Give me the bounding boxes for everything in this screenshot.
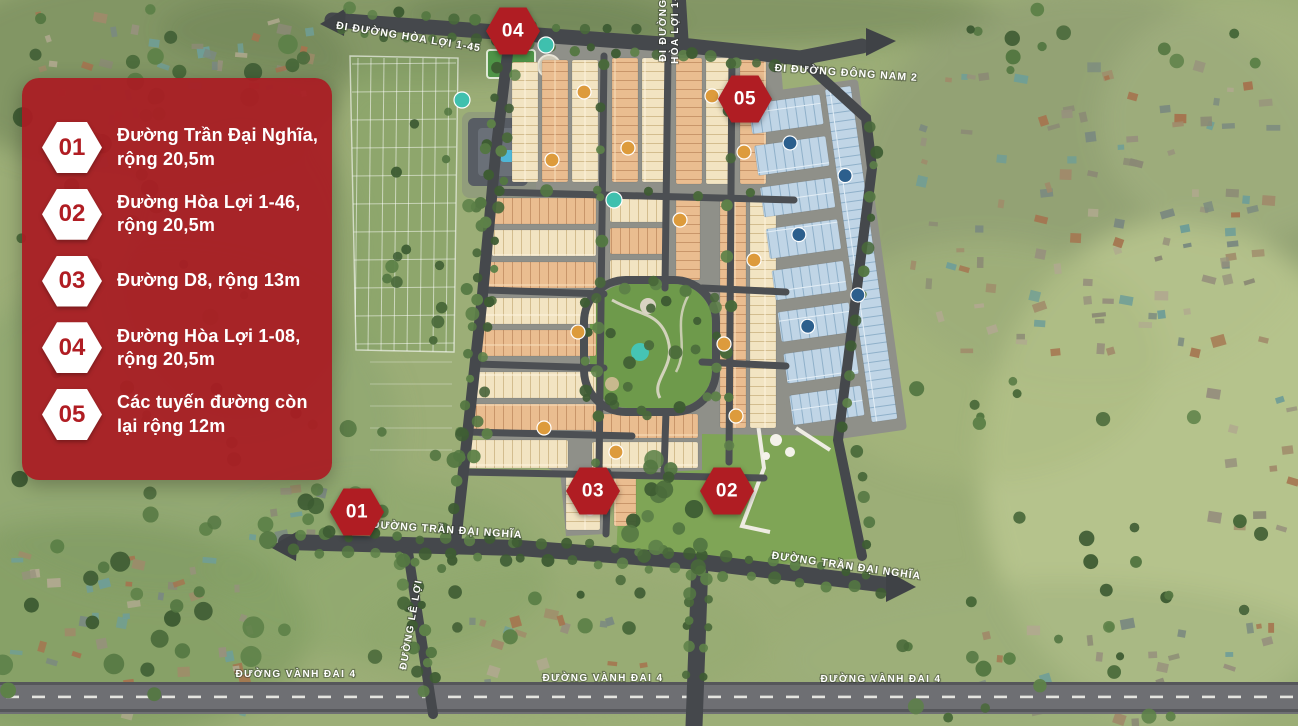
legend-item-label: Đường Hòa Lợi 1-08, rộng 20,5m [117, 325, 332, 371]
legend-badge-hexagon: 05 [42, 389, 102, 440]
map-marker-03: 03 [566, 468, 620, 515]
legend-badge-hexagon: 02 [42, 189, 102, 240]
map-marker-01: 01 [330, 489, 384, 536]
legend-item-label: Đường Hòa Lợi 1-46, rộng 20,5m [117, 191, 332, 237]
road-label-vanh-dai-4-right: ĐƯỜNG VÀNH ĐAI 4 [821, 672, 942, 685]
legend-item-label: Đường D8, rộng 13m [117, 269, 332, 292]
legend-item: 04 Đường Hòa Lợi 1-08, rộng 20,5m [22, 322, 332, 373]
road-label-vanh-dai-4-center: ĐƯỜNG VÀNH ĐAI 4 [543, 671, 664, 684]
road-hoa-loi-1-46 [694, 562, 700, 726]
legend-item-label: Đường Trần Đại Nghĩa, rộng 20,5m [117, 124, 332, 170]
legend-item: 03 Đường D8, rộng 13m [22, 256, 332, 307]
svg-text:HÒA LỢI 1-: HÒA LỢI 1- [668, 0, 681, 64]
legend-badge-hexagon: 04 [42, 322, 102, 373]
legend-badge-hexagon: 01 [42, 122, 102, 173]
legend-item: 05 Các tuyến đường còn lại rộng 12m [22, 389, 332, 440]
map-marker-02: 02 [700, 468, 754, 515]
svg-text:ĐI ĐƯỜNG: ĐI ĐƯỜNG [656, 0, 669, 62]
highway-vanh-dai-4 [0, 682, 1298, 714]
legend-item: 01 Đường Trần Đại Nghĩa, rộng 20,5m [22, 122, 332, 173]
legend-item: 02 Đường Hòa Lợi 1-46, rộng 20,5m [22, 189, 332, 240]
road-label-hoa-loi-north: ĐI ĐƯỜNG HÒA LỢI 1- [656, 0, 681, 64]
masterplan-poster: ĐI ĐƯỜNG HÒA LỢI 1-45 ĐI ĐƯỜNG HÒA LỢI 1… [0, 0, 1298, 726]
map-marker-05: 05 [718, 76, 772, 123]
legend-panel: 01 Đường Trần Đại Nghĩa, rộng 20,5m 02 Đ… [22, 78, 332, 480]
legend-badge-hexagon: 03 [42, 256, 102, 307]
road-label-vanh-dai-4-left: ĐƯỜNG VÀNH ĐAI 4 [236, 667, 357, 680]
legend-item-label: Các tuyến đường còn lại rộng 12m [117, 391, 332, 437]
map-marker-04: 04 [486, 8, 540, 55]
